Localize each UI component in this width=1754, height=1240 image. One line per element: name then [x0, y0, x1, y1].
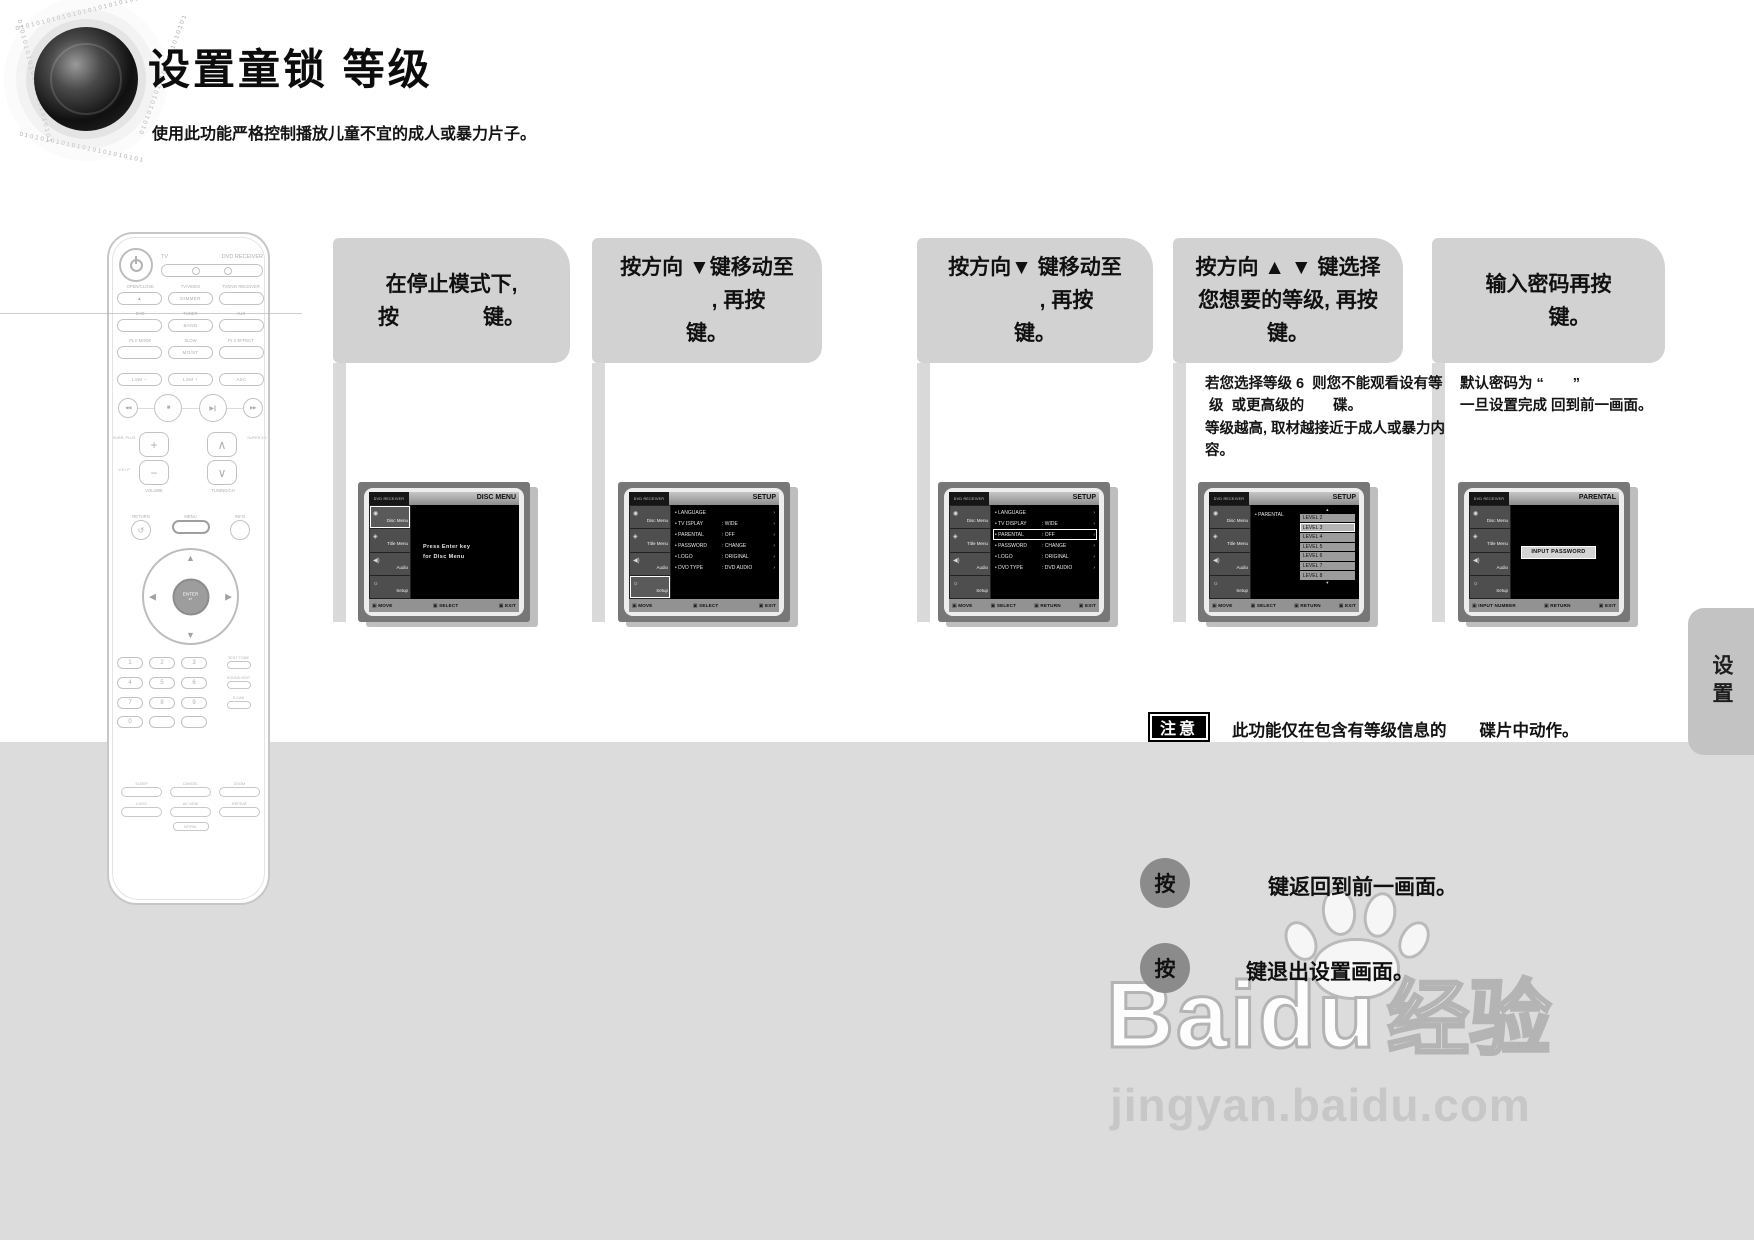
tv-header: DVD RECEIVERSETUP — [949, 492, 1099, 505]
menu-row: • TV ISPLAY: WIDE› — [673, 518, 777, 529]
tv-header: DVD RECEIVERSETUP — [1209, 492, 1359, 505]
sidebar-item: ◀)Audio — [1470, 553, 1510, 575]
footer-item: ▣MOVE — [952, 603, 973, 609]
button-label — [216, 365, 266, 372]
footer-button-icon: ▣ — [372, 603, 377, 609]
remote-body: TVDVD RECEIVEROPEN/CLOSETV/VIDEOTV/DVD R… — [107, 232, 270, 905]
tv-header: DVD RECEIVERPARENTAL — [1469, 492, 1619, 505]
menu-arrow-icon: › — [1090, 543, 1095, 549]
tv-footer: ▣MOVE▣SELECT▣EXIT — [369, 599, 519, 612]
step-connector-strip — [333, 363, 346, 622]
menu-row: • LOGO: ORIGINAL› — [993, 551, 1097, 562]
bottom-button — [121, 807, 162, 817]
sidebar-item: ☼Setup — [630, 576, 670, 598]
step-text-line: 键。 — [592, 317, 822, 350]
tv-bezel: DVD RECEIVERSETUP◉Disc Menu◈Title Menu◀)… — [624, 488, 784, 616]
sidebar-item-label: Setup — [656, 588, 670, 593]
menu-arrow-icon: › — [1090, 554, 1095, 560]
step-note-line: 若您选择等级 6 则您不能观看设有等 — [1205, 373, 1485, 395]
down-arrow-icon: ▼ — [186, 630, 195, 640]
tv-footer: ▣INPUT NUMBER▣RETURN▣EXIT — [1469, 599, 1619, 612]
step-text-line: 输入密码再按 — [1432, 268, 1665, 301]
bottom-button — [170, 807, 211, 817]
menu-row: • LANGUAGE› — [673, 507, 777, 518]
footer-button-icon: ▣ — [759, 603, 764, 609]
left-arrow-icon: ◀ — [149, 591, 156, 602]
audio-icon: ◀) — [1213, 558, 1250, 564]
menu-value: : ORIGINAL — [1042, 554, 1090, 560]
mid-button: RETURN↺ — [121, 514, 161, 544]
remote-button — [219, 346, 264, 359]
setup-icon: ☼ — [1473, 581, 1510, 587]
footer-item: ▣SELECT — [1251, 603, 1277, 609]
menu-row: • PASSWORD: CHANGE› — [993, 540, 1097, 551]
super51-label: SUPER 5.1 — [244, 436, 270, 441]
mode-dot — [192, 267, 200, 275]
section-tab-setup: 设置 — [1688, 608, 1754, 755]
footer-button-icon: ▣ — [1294, 603, 1299, 609]
side-button — [227, 701, 251, 709]
bottom-button-label: ZOOM — [215, 782, 264, 786]
menu-arrow-icon: › — [1090, 521, 1095, 527]
step-note-line: 等级越高, 取材越接近于成人或暴力内 — [1205, 418, 1485, 440]
sidebar-item: ◈Title Menu — [370, 529, 410, 551]
menu-row: • DVD TYPE: DVD AUDIO› — [673, 562, 777, 573]
sidebar-item-label: Audio — [1236, 565, 1250, 570]
parental-label: • PARENTAL — [1253, 507, 1300, 597]
step-box: 按方向 ▲ ▼ 键选择您想要的等级, 再按键。 — [1173, 238, 1403, 363]
step-text-line: 按方向▼ 键移动至 — [917, 251, 1153, 284]
step-box: 输入密码再按 键。 — [1432, 238, 1665, 363]
digit-button: 5 — [149, 677, 175, 689]
step-connector-strip — [917, 363, 930, 622]
tv-sidebar: ◉Disc Menu◈Title Menu◀)Audio☼Setup — [1469, 505, 1511, 599]
sidebar-item: ◉Disc Menu — [630, 506, 670, 528]
side-button-label: TEST TONE — [228, 656, 249, 660]
footer-item: ▣RETURN — [1544, 603, 1571, 609]
note-text: 此功能仅在包含有等级信息的 碟片中动作。 — [1232, 717, 1579, 741]
menu-label: • PASSWORD — [675, 543, 722, 549]
menu-arrow-icon: › — [770, 565, 775, 571]
footer-button-icon: ▣ — [1339, 603, 1344, 609]
sidebar-item: ◉Disc Menu — [950, 506, 990, 528]
footer-button-icon: ▣ — [693, 603, 698, 609]
sidebar-item-label: Disc Menu — [1227, 518, 1250, 523]
disc-menu-icon: ◉ — [373, 511, 410, 517]
footer-item: ▣SELECT — [991, 603, 1017, 609]
menu-label: • PARENTAL — [675, 532, 722, 538]
tv-screen: DVD RECEIVERSETUP◉Disc Menu◈Title Menu◀)… — [618, 482, 790, 622]
footer-button-icon: ▣ — [1079, 603, 1084, 609]
mid-button: INFO — [220, 514, 260, 544]
tv-bezel: DVD RECEIVERPARENTAL◉Disc Menu◈Title Men… — [1464, 488, 1624, 616]
menu-arrow-icon: › — [770, 543, 775, 549]
sidebar-item: ◀)Audio — [1210, 553, 1250, 575]
sidebar-item-label: Disc Menu — [387, 518, 410, 523]
footer-button-icon: ▣ — [1544, 603, 1549, 609]
footer-item: ▣EXIT — [499, 603, 516, 609]
footer-item: ▣MOVE — [1212, 603, 1233, 609]
footer-label: MOVE — [1218, 603, 1232, 608]
menu-label: • LOGO — [995, 554, 1042, 560]
binary-texture: 010101010101010101010101 — [19, 132, 146, 165]
footer-button-icon: ▣ — [499, 603, 504, 609]
menu-label: • DVD TYPE — [995, 565, 1042, 571]
enter-button: ENTER↵ — [172, 578, 209, 615]
manual-page: Baidu 经验 jingyan.baidu.com 0101010101010… — [0, 0, 1754, 1240]
tv-main: INPUT PASSWORD — [1511, 505, 1619, 599]
tv-screen: DVD RECEIVERSETUP◉Disc Menu◈Title Menu◀)… — [1198, 482, 1370, 622]
mode-labels: TVDVD RECEIVER — [161, 254, 263, 260]
remote-illustration: TVDVD RECEIVEROPEN/CLOSETV/VIDEOTV/DVD R… — [107, 232, 270, 905]
step-text-line: 按 键。 — [333, 301, 570, 334]
footer-item: ▣RETURN — [1294, 603, 1321, 609]
tv-brand-chip: DVD RECEIVER — [1209, 492, 1249, 505]
step-note: 默认密码为 “ ”一旦设置完成 回到前一画面。 — [1460, 373, 1732, 418]
sidebar-item: ◀)Audio — [950, 553, 990, 575]
tv-brand-chip: DVD RECEIVER — [949, 492, 989, 505]
digit-button: 9 — [181, 697, 207, 709]
bottom-button — [170, 787, 211, 797]
audio-icon: ◀) — [373, 558, 410, 564]
step-box: 按方向▼ 键移动至 , 再按键。 — [917, 238, 1153, 363]
sidebar-item: ☼Setup — [950, 576, 990, 598]
level-row: LEVEL 5 — [1300, 543, 1355, 552]
tv-main: Press Enter keyfor Disc Menu — [411, 505, 519, 599]
button-label: TV/DVD RECEIVER — [216, 284, 266, 291]
sidebar-item-label: Title Menu — [967, 541, 990, 546]
blank-button — [149, 716, 175, 728]
power-icon — [130, 259, 143, 272]
sidebar-item-label: Setup — [976, 588, 990, 593]
digit-button: 0 — [117, 716, 143, 728]
footer-item: ▣EXIT — [759, 603, 776, 609]
tv-bezel: DVD RECEIVERDISC MENU◉Disc Menu◈Title Me… — [364, 488, 524, 616]
footer-button-icon: ▣ — [1599, 603, 1604, 609]
menu-return-row: RETURN↺MENUINFO — [115, 514, 266, 544]
step-text-line: 按方向 ▲ ▼ 键选择 — [1173, 251, 1403, 284]
remote-button: ASC — [219, 373, 264, 386]
footer-item: ▣SELECT — [693, 603, 719, 609]
menu-arrow-icon: › — [1090, 565, 1095, 571]
disc-menu-icon: ◉ — [953, 511, 990, 517]
digit-button: 8 — [149, 697, 175, 709]
bottom-button-label: LOGO — [117, 802, 166, 806]
sidebar-item-label: Disc Menu — [647, 518, 670, 523]
stop-icon: ■ — [154, 394, 182, 422]
button-label: OPEN/CLOSE — [115, 284, 165, 291]
speaker-lens-icon — [34, 27, 138, 131]
side-button — [227, 661, 251, 669]
tv-header: DVD RECEIVERSETUP — [629, 492, 779, 505]
tv-screen-inner: DVD RECEIVERSETUP◉Disc Menu◈Title Menu◀)… — [629, 492, 779, 612]
number-row: 123TEST TONE — [117, 656, 264, 669]
footer-item: ▣MOVE — [632, 603, 653, 609]
side-button — [227, 681, 251, 689]
step-box: 在停止模式下,按 键。 — [333, 238, 570, 363]
menu-arrow-icon: › — [770, 532, 775, 538]
menu-value: : WIDE — [722, 521, 770, 527]
step-note-line: 级 或更高级的 碟。 — [1205, 395, 1485, 417]
mid-button-label: RETURN — [132, 514, 149, 519]
transport-row: ◀◀■▶∥▶▶ — [115, 392, 266, 424]
tv-brand-chip: DVD RECEIVER — [369, 492, 409, 505]
mid-button-label: MENU — [184, 514, 196, 519]
menu-row: • LOGO: ORIGINAL› — [673, 551, 777, 562]
footer-label: RETURN — [1550, 603, 1570, 608]
tv-body: ◉Disc Menu◈Title Menu◀)Audio☼Setup• PARE… — [1209, 505, 1359, 599]
button-label-row: OPEN/CLOSETV/VIDEOTV/DVD RECEIVER — [115, 284, 266, 291]
volume-up-button: + — [139, 432, 169, 457]
button-pill-row: BAND — [117, 319, 264, 332]
remote-button — [219, 319, 264, 332]
surr-plus-label: SURR. PLUS — [111, 436, 137, 441]
page-subtitle: 使用此功能严格控制播放儿童不宜的成人或暴力片子。 — [152, 120, 536, 144]
step-note-line: 容。 — [1205, 440, 1485, 462]
input-password-box: INPUT PASSWORD — [1521, 546, 1596, 559]
footer-button-icon: ▣ — [433, 603, 438, 609]
tv-main: • LANGUAGE›• TV DISPLAY: WIDE›• PARENTAL… — [991, 505, 1099, 599]
return-button: ↺ — [131, 520, 151, 540]
menu-row: • LANGUAGE› — [993, 507, 1097, 518]
up-arrow-icon: ▲ — [186, 553, 195, 563]
mode-dot — [224, 267, 232, 275]
tuning-up-button: ∧ — [207, 432, 237, 457]
menu-value: : CHANGE — [1042, 543, 1090, 549]
button-label: SLOW — [165, 338, 215, 345]
sidebar-item-label: Title Menu — [1487, 541, 1510, 546]
volume-tuning-cluster: +−VOLUME∧∨TUNING/CHSURR. PLUSV.S.I.PSUPE… — [111, 430, 270, 508]
step-connector-strip — [1173, 363, 1186, 622]
tv-screen-inner: DVD RECEIVERDISC MENU◉Disc Menu◈Title Me… — [369, 492, 519, 612]
bottom-button-label: SLEEP — [117, 782, 166, 786]
sidebar-item-label: Title Menu — [1227, 541, 1250, 546]
tv-sidebar: ◉Disc Menu◈Title Menu◀)Audio☼Setup — [369, 505, 411, 599]
number-side: S.CAN — [213, 696, 264, 709]
setup-icon: ☼ — [633, 581, 670, 587]
footer-button-icon: ▣ — [952, 603, 957, 609]
footer-button-icon: ▣ — [632, 603, 637, 609]
prev-icon: ◀◀ — [118, 398, 138, 418]
menu-label: • LANGUAGE — [675, 510, 722, 516]
title-menu-icon: ◈ — [373, 534, 410, 540]
button-label — [165, 365, 215, 372]
tv-sidebar: ◉Disc Menu◈Title Menu◀)Audio☼Setup — [629, 505, 671, 599]
tv-screen-title: DISC MENU — [409, 492, 519, 505]
step-text-line: 您想要的等级, 再按 — [1173, 284, 1403, 317]
sidebar-item: ◉Disc Menu — [1210, 506, 1250, 528]
menu-arrow-icon: › — [770, 510, 775, 516]
footer-button-icon: ▣ — [1251, 603, 1256, 609]
sidebar-item: ☼Setup — [1470, 576, 1510, 598]
step-text-line: , 再按 — [592, 284, 822, 317]
level-row: LEVEL 6 — [1300, 552, 1355, 561]
setup-icon: ☼ — [1213, 581, 1250, 587]
tv-footer: ▣MOVE▣SELECT▣EXIT — [629, 599, 779, 612]
menu-row: • DVD TYPE: DVD AUDIO› — [993, 562, 1097, 573]
footer-label: EXIT — [1345, 603, 1356, 608]
menu-label: • TV ISPLAY — [675, 521, 722, 527]
ntpal-button: NT/PAL — [173, 822, 209, 831]
sidebar-item-label: Setup — [1236, 588, 1250, 593]
down-arrow-icon: ▼ — [1300, 581, 1355, 586]
bottom-button-label: AV VIEW — [166, 802, 215, 806]
number-row: 456SOUND EDIT — [117, 676, 264, 689]
sidebar-item: ◈Title Menu — [1470, 529, 1510, 551]
up-arrow-icon: ▲ — [1300, 508, 1355, 513]
menu-button — [172, 520, 210, 534]
tv-message-line: Press Enter key — [423, 544, 517, 550]
number-pad: 123TEST TONE456SOUND EDIT789S.CAN0 — [117, 656, 264, 735]
footer-label: SELECT — [997, 603, 1016, 608]
side-button-label: S.CAN — [233, 696, 245, 700]
bottom-button-label: CANCEL — [166, 782, 215, 786]
step-note: 若您选择等级 6 则您不能观看设有等 级 或更高级的 碟。等级越高, 取材越接近… — [1205, 373, 1485, 463]
footer-item: ▣MOVE — [372, 603, 393, 609]
right-arrow-icon: ▶ — [225, 591, 232, 602]
tv-brand-chip: DVD RECEIVER — [629, 492, 669, 505]
sidebar-item-label: Title Menu — [387, 541, 410, 546]
tv-screen-inner: DVD RECEIVERPARENTAL◉Disc Menu◈Title Men… — [1469, 492, 1619, 612]
sidebar-item: ◈Title Menu — [1210, 529, 1250, 551]
menu-label: • LANGUAGE — [995, 510, 1042, 516]
number-row: 0 — [117, 716, 264, 728]
sidebar-item-label: Setup — [396, 588, 410, 593]
step-text-line: 键。 — [1173, 317, 1403, 350]
tv-header: DVD RECEIVERDISC MENU — [369, 492, 519, 505]
tv-bezel: DVD RECEIVERSETUP◉Disc Menu◈Title Menu◀)… — [1204, 488, 1364, 616]
sidebar-item: ◈Title Menu — [630, 529, 670, 551]
bottom-label-row: SLEEPCANCELZOOM — [117, 782, 264, 786]
remote-button: LSM − — [117, 373, 162, 386]
note-badge: 注意 — [1148, 712, 1210, 742]
tv-main: • PARENTAL▲LEVEL 2LEVEL 3LEVEL 4LEVEL 5L… — [1251, 505, 1359, 599]
tv-screen-title: SETUP — [669, 492, 779, 505]
mode-label: DVD RECEIVER — [222, 254, 263, 260]
menu-arrow-icon: › — [1090, 532, 1095, 538]
menu-value: : ORIGINAL — [722, 554, 770, 560]
footer-label: INPUT NUMBER — [1478, 603, 1516, 608]
bottom-pill-row — [121, 787, 260, 797]
menu-label: • TV DISPLAY — [995, 521, 1042, 527]
bottom-label-row: LOGOAV VIEWREPEAT — [117, 802, 264, 806]
step-note-line: 默认密码为 “ ” — [1460, 373, 1732, 395]
mode-selector — [161, 264, 263, 277]
menu-label: • LOGO — [675, 554, 722, 560]
title-menu-icon: ◈ — [953, 534, 990, 540]
button-label: PL II MODE — [115, 338, 165, 345]
tv-brand-chip: DVD RECEIVER — [1469, 492, 1509, 505]
button-pill-row: MO/ST — [117, 346, 264, 359]
remote-button — [117, 319, 162, 332]
tv-screen: DVD RECEIVERDISC MENU◉Disc Menu◈Title Me… — [358, 482, 530, 622]
tuning-down-button: ∨ — [207, 460, 237, 485]
menu-value: : DVD AUDIO — [1042, 565, 1090, 571]
play-pause-icon: ▶∥ — [199, 394, 227, 422]
footer-label: SELECT — [439, 603, 458, 608]
footer-label: MOVE — [958, 603, 972, 608]
menu-value: : OFF — [1042, 532, 1090, 538]
digit-button: 1 — [117, 657, 143, 669]
number-side: SOUND EDIT — [213, 676, 264, 689]
tv-screen: DVD RECEIVERSETUP◉Disc Menu◈Title Menu◀)… — [938, 482, 1110, 622]
level-row: LEVEL 2 — [1300, 514, 1355, 523]
sidebar-item: ◀)Audio — [370, 553, 410, 575]
menu-arrow-icon: › — [770, 554, 775, 560]
bottom-button-rows: SLEEPCANCELZOOMLOGOAV VIEWREPEATNT/PAL — [117, 782, 264, 831]
menu-value: : CHANGE — [722, 543, 770, 549]
digit-button: 6 — [181, 677, 207, 689]
tv-message-line: for Disc Menu — [423, 554, 517, 560]
menu-value: : DVD AUDIO — [722, 565, 770, 571]
button-grid: OPEN/CLOSETV/VIDEOTV/DVD RECEIVER▲DIMMER… — [115, 284, 266, 392]
mode-label: TV — [161, 254, 168, 260]
button-label: TV/VIDEO — [165, 284, 215, 291]
tv-screen-title: SETUP — [1249, 492, 1359, 505]
footer-button-icon: ▣ — [991, 603, 996, 609]
digit-button: 2 — [149, 657, 175, 669]
step-box: 按方向 ▼键移动至 , 再按键。 — [592, 238, 822, 363]
volume-down-button: − — [139, 460, 169, 485]
menu-value: : OFF — [722, 532, 770, 538]
tv-screen-title: PARENTAL — [1509, 492, 1619, 505]
next-icon: ▶▶ — [243, 398, 263, 418]
tv-screen-inner: DVD RECEIVERSETUP◉Disc Menu◈Title Menu◀)… — [1209, 492, 1359, 612]
bottom-button-label: REPEAT — [215, 802, 264, 806]
press-button-circle: 按 — [1140, 858, 1190, 908]
level-row: LEVEL 8 — [1300, 571, 1355, 580]
level-row: LEVEL 4 — [1300, 533, 1355, 542]
menu-row: • PASSWORD: CHANGE› — [673, 540, 777, 551]
button-label-row — [115, 365, 266, 372]
sidebar-item: ◀)Audio — [630, 553, 670, 575]
menu-arrow-icon: › — [1090, 510, 1095, 516]
button-label — [115, 365, 165, 372]
audio-icon: ◀) — [953, 558, 990, 564]
footer-label: RETURN — [1300, 603, 1320, 608]
mid-button-label: INFO — [235, 514, 245, 519]
menu-label: • DVD TYPE — [675, 565, 722, 571]
tv-sidebar: ◉Disc Menu◈Title Menu◀)Audio☼Setup — [949, 505, 991, 599]
menu-label: • PASSWORD — [995, 543, 1042, 549]
step-text-line: 按方向 ▼键移动至 — [592, 251, 822, 284]
sidebar-item-label: Audio — [656, 565, 670, 570]
button-label-row: PL II MODESLOWPL II EFFECT — [115, 338, 266, 345]
title-menu-icon: ◈ — [1473, 534, 1510, 540]
sidebar-item-label: Disc Menu — [967, 518, 990, 523]
remote-button — [219, 292, 264, 305]
page-crease-line — [0, 313, 302, 314]
sidebar-item: ◉Disc Menu — [1470, 506, 1510, 528]
step-text-line: 键。 — [917, 317, 1153, 350]
footer-item: ▣RETURN — [1034, 603, 1061, 609]
menu-row: • PARENTAL: OFF› — [993, 529, 1097, 540]
info-button — [230, 520, 250, 540]
digit-button: 3 — [181, 657, 207, 669]
blank-button — [181, 716, 207, 728]
tv-screen: DVD RECEIVERPARENTAL◉Disc Menu◈Title Men… — [1458, 482, 1630, 622]
sidebar-item-label: Disc Menu — [1487, 518, 1510, 523]
sidebar-item-label: Audio — [1496, 565, 1510, 570]
disc-menu-icon: ◉ — [633, 511, 670, 517]
title-menu-icon: ◈ — [633, 534, 670, 540]
sidebar-item-label: Setup — [1496, 588, 1510, 593]
sidebar-item-label: Audio — [396, 565, 410, 570]
remote-button: BAND — [168, 319, 213, 332]
level-list: ▲LEVEL 2LEVEL 3LEVEL 4LEVEL 5LEVEL 6LEVE… — [1300, 507, 1357, 597]
side-button-label: SOUND EDIT — [227, 676, 250, 680]
sidebar-item: ◈Title Menu — [950, 529, 990, 551]
